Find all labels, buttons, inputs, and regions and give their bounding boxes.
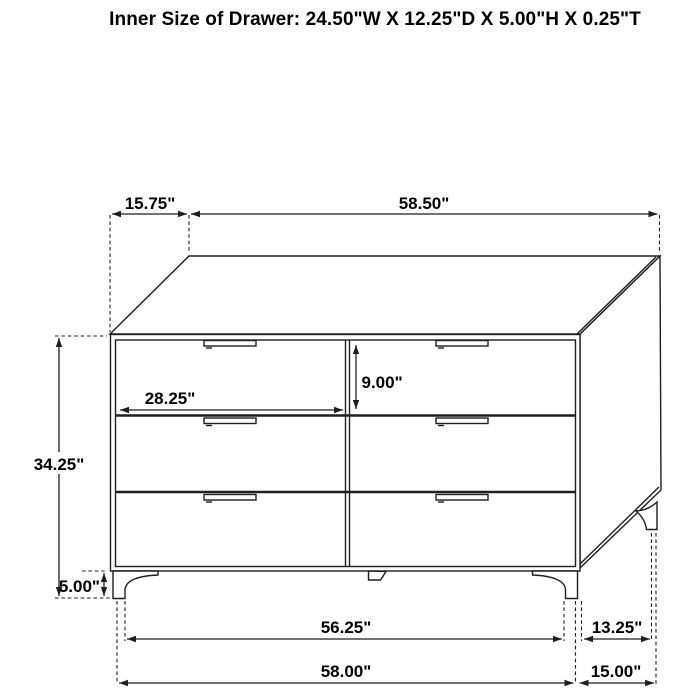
dim-label-top-width: 58.50" <box>399 194 450 213</box>
dimension-top-offset: 15.75" <box>112 194 187 214</box>
furniture-dimension-diagram: Inner Size of Drawer: 24.50"W X 12.25"D … <box>0 0 700 700</box>
dresser-line-drawing: 15.75" 58.50" 28.25" 9.00" 34.25" 5.00" … <box>0 0 700 700</box>
dim-label-foot-span-depth: 13.25" <box>592 618 643 637</box>
dresser-top <box>110 256 660 338</box>
center-support <box>369 571 387 580</box>
dimension-overall-depth: 15.00" <box>580 662 655 683</box>
dimension-overall-width: 58.00" <box>119 662 574 683</box>
dim-label-overall-depth: 15.00" <box>591 662 642 681</box>
dimension-leg-height: 5.00" <box>59 573 104 596</box>
dimension-top-width: 58.50" <box>191 194 658 214</box>
dresser-front <box>111 335 581 572</box>
dim-label-drawer-width: 28.25" <box>145 389 196 408</box>
dim-label-foot-span-width: 56.25" <box>321 618 372 637</box>
dresser <box>110 256 661 599</box>
dim-label-leg-height: 5.00" <box>59 577 100 596</box>
dim-label-top-offset: 15.75" <box>125 194 176 213</box>
dim-label-overall-height: 34.25" <box>34 455 85 474</box>
dimension-foot-span-width: 56.25" <box>127 618 562 639</box>
dimension-foot-span-depth: 13.25" <box>584 618 650 639</box>
front-left-leg <box>113 571 158 599</box>
dim-label-overall-width: 58.00" <box>321 662 372 681</box>
front-right-leg <box>533 571 578 599</box>
dim-label-drawer-height: 9.00" <box>362 373 403 392</box>
dimension-overall-height: 34.25" <box>29 338 89 596</box>
dresser-legs <box>113 571 578 599</box>
